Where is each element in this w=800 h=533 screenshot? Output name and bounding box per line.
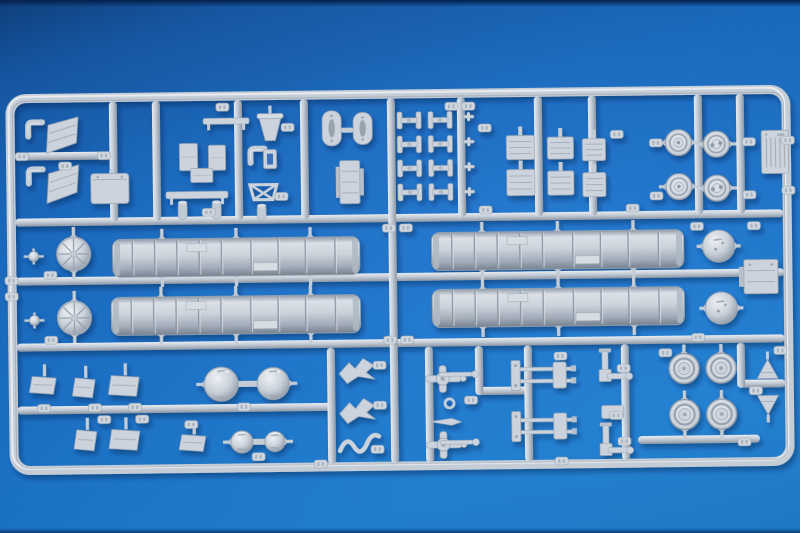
part-number-tag bbox=[738, 438, 751, 446]
dome-pair-part bbox=[223, 430, 293, 453]
road-wheel bbox=[706, 390, 737, 440]
flag-box-part bbox=[74, 418, 97, 451]
flag-box-part bbox=[29, 364, 56, 394]
part-number-tag bbox=[185, 420, 198, 428]
ribbed-dome-cap bbox=[56, 227, 91, 279]
part-number-tag bbox=[462, 102, 475, 110]
axle-assembly-part bbox=[512, 411, 577, 442]
part-number-tag bbox=[373, 401, 386, 409]
smooth-dome-cap bbox=[699, 292, 743, 325]
radiator-box-part bbox=[507, 160, 535, 195]
part-number-tag bbox=[88, 404, 101, 412]
part-number-tag bbox=[445, 102, 458, 110]
part-number-tag bbox=[554, 352, 567, 360]
flag-box-part bbox=[72, 366, 95, 398]
axle-assembly-part bbox=[511, 360, 576, 391]
cab-wedge-part bbox=[46, 117, 78, 153]
sprue-svg bbox=[0, 0, 800, 533]
part-number-tag bbox=[650, 192, 663, 200]
part-number-tag bbox=[59, 162, 72, 170]
part-number-tag bbox=[774, 346, 787, 354]
part-number-tag bbox=[97, 152, 110, 160]
radiator-box-part bbox=[547, 128, 573, 159]
linkage-h-part bbox=[428, 111, 452, 128]
bucket-part bbox=[257, 105, 283, 140]
cone-part bbox=[757, 395, 778, 422]
cross-brace-part bbox=[250, 184, 277, 199]
flag-box-part bbox=[108, 363, 139, 396]
hanging-cylinder-part bbox=[178, 201, 187, 220]
radiator-box-part bbox=[583, 163, 606, 196]
elbow-tube-part bbox=[250, 149, 264, 163]
road-wheel bbox=[706, 344, 736, 383]
pill-plate-part bbox=[353, 112, 372, 144]
sprue-rail-vertical bbox=[534, 96, 543, 216]
spear-part bbox=[430, 418, 462, 425]
part-number-tag bbox=[610, 411, 623, 419]
part-number-tag bbox=[618, 437, 631, 445]
part-number-tag bbox=[747, 222, 760, 230]
part-number-tag bbox=[749, 387, 762, 395]
radiator-box-part bbox=[582, 129, 605, 160]
tank-box-part bbox=[91, 169, 129, 204]
part-number-tag bbox=[464, 396, 477, 404]
dome-pair-part bbox=[196, 366, 297, 401]
part-number-tag bbox=[479, 206, 492, 214]
part-number-tag bbox=[5, 277, 18, 285]
sprue-rail-vertical bbox=[300, 99, 309, 219]
part-number-tag bbox=[384, 336, 397, 344]
hanging-cylinder-part bbox=[257, 204, 266, 221]
cab-wedge-part bbox=[47, 165, 79, 203]
part-number-tag bbox=[617, 364, 630, 372]
sprue-rail-horizontal bbox=[15, 209, 783, 226]
cone-part bbox=[757, 351, 778, 378]
ball-pin-part bbox=[24, 248, 44, 264]
bird-bracket-part bbox=[339, 358, 375, 383]
linkage-h-part bbox=[429, 159, 453, 176]
part-number-tag bbox=[399, 224, 412, 232]
linkage-h-part bbox=[397, 136, 421, 153]
pill-plate-part bbox=[322, 111, 341, 146]
pill-plate-link bbox=[341, 128, 353, 133]
part-number-tag bbox=[237, 403, 250, 411]
part-number-tag bbox=[401, 336, 414, 344]
sprue-rail-vertical bbox=[524, 345, 533, 461]
part-number-tag bbox=[478, 124, 491, 132]
linkage-h-part bbox=[398, 184, 422, 201]
part-number-tag bbox=[626, 204, 639, 212]
bird-bracket-part bbox=[339, 398, 375, 423]
part-number-tag bbox=[371, 445, 384, 453]
ball-pin-part bbox=[24, 312, 44, 328]
part-number-tag bbox=[37, 404, 50, 412]
small-box-part bbox=[191, 168, 213, 182]
sprue-rail-horizontal bbox=[477, 386, 531, 395]
part-number-tag bbox=[373, 361, 386, 369]
part-number-tag bbox=[659, 349, 672, 357]
small-box-part bbox=[179, 143, 197, 170]
part-number-tag bbox=[202, 208, 215, 216]
sprue-rail-vertical bbox=[327, 348, 336, 464]
part-number-tag bbox=[216, 103, 229, 111]
part-number-tag bbox=[610, 130, 623, 138]
part-number-tag bbox=[128, 403, 141, 411]
missile-canister-half bbox=[432, 277, 685, 338]
part-number-tag bbox=[45, 336, 58, 344]
sprue-rail-vertical bbox=[152, 101, 161, 221]
sprue-rail-horizontal bbox=[741, 379, 785, 388]
linkage-h-part bbox=[428, 135, 452, 152]
wheel-hub bbox=[658, 129, 698, 155]
part-number-tag bbox=[692, 333, 705, 341]
elbow-tube-part bbox=[29, 169, 43, 183]
part-number-tag bbox=[555, 457, 568, 465]
part-number-tag bbox=[44, 271, 57, 279]
sprue-rail-vertical bbox=[694, 94, 703, 214]
eyelet-part bbox=[445, 399, 454, 408]
part-number-tag bbox=[314, 460, 327, 468]
smooth-dome-cap bbox=[696, 230, 740, 263]
part-number-tag bbox=[649, 139, 662, 147]
part-number-tag bbox=[743, 191, 756, 199]
part-number-tag bbox=[690, 222, 703, 230]
flanged-box-part bbox=[739, 259, 778, 293]
flag-box-part bbox=[109, 417, 140, 450]
part-number-tag bbox=[742, 138, 755, 146]
photo-top-edge-shadow bbox=[0, 0, 800, 7]
tall-box-part bbox=[336, 160, 365, 203]
radiator-box-part bbox=[548, 162, 574, 195]
part-number-tag bbox=[281, 123, 294, 131]
sprue-rail-vertical bbox=[737, 343, 746, 388]
part-number-tag bbox=[781, 136, 794, 144]
part-number-tag bbox=[5, 293, 18, 301]
wheel-hub bbox=[659, 173, 699, 199]
part-number-tag bbox=[275, 192, 288, 200]
ribbed-dome-cap bbox=[57, 291, 92, 343]
photo-bottom-edge-shadow bbox=[0, 528, 800, 533]
linkage-h-part bbox=[397, 112, 421, 129]
photo-scene bbox=[0, 0, 800, 533]
missile-canister-half bbox=[111, 284, 361, 345]
small-box-part bbox=[208, 145, 225, 170]
part-number-tag bbox=[136, 415, 149, 423]
linkage-h-part bbox=[429, 183, 453, 200]
radiator-box-part bbox=[506, 126, 534, 159]
elbow-tube-part bbox=[28, 122, 42, 136]
road-wheel bbox=[669, 344, 699, 383]
part-number-tag bbox=[15, 153, 28, 161]
road-wheel bbox=[669, 390, 700, 440]
sprue-rail-horizontal bbox=[18, 403, 334, 415]
part-number-tag bbox=[252, 453, 265, 461]
part-number-tag bbox=[382, 224, 395, 232]
part-number-tag bbox=[98, 416, 111, 424]
thin-bar-part bbox=[203, 118, 249, 131]
buckle-frame-part bbox=[263, 150, 276, 169]
part-number-tag bbox=[782, 186, 795, 194]
linkage-h-part bbox=[398, 160, 422, 177]
